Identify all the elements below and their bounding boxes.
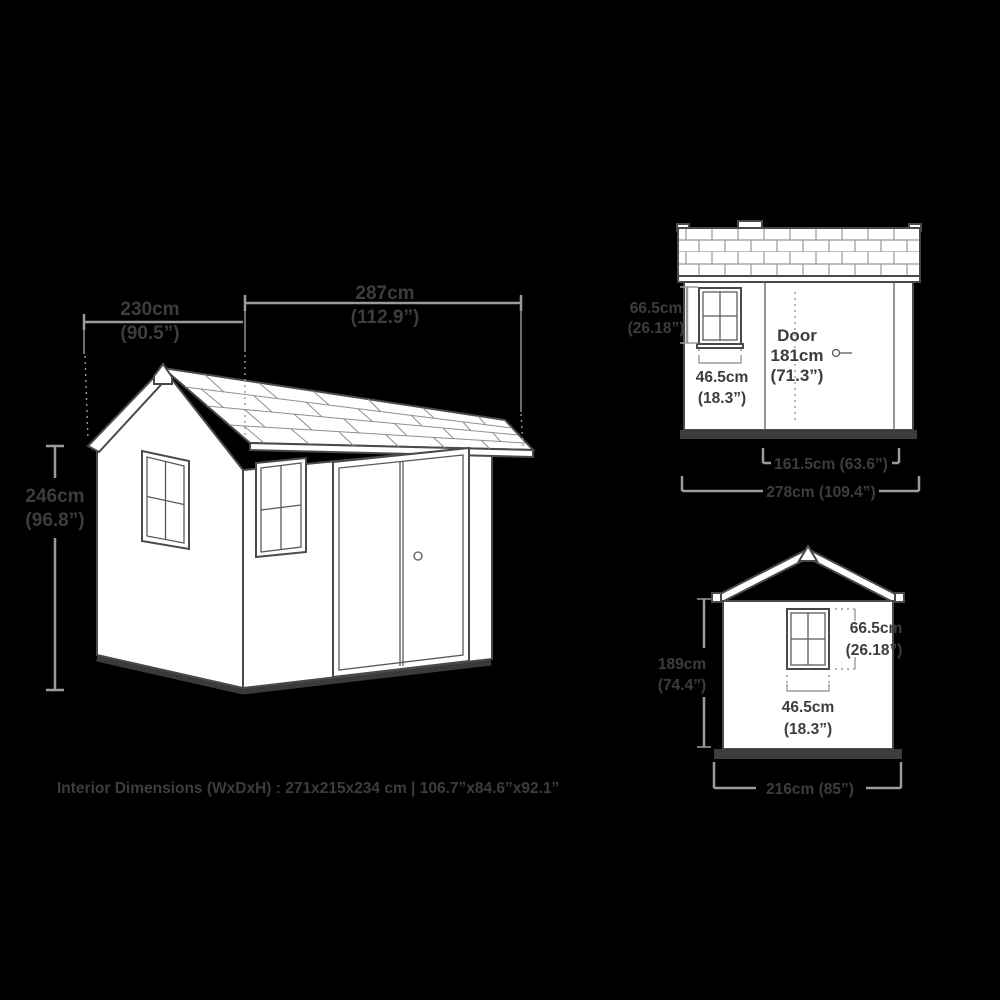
side-window-width-cm: 46.5cm [782, 699, 835, 716]
front-overall-width-label: 278cm (109.4”) [766, 484, 875, 501]
front-door-height-cm: 181cm [771, 346, 824, 365]
interior-dimensions-text: Interior Dimensions (WxDxH) : 271x215x23… [57, 780, 559, 797]
side-overall-width-label: 216cm (85”) [766, 781, 854, 798]
iso-depth-in: (90.5”) [120, 323, 179, 344]
iso-width-in: (112.9”) [351, 307, 420, 328]
front-view: Door 181cm (71.3”) 46.5cm (18.3”) 66.5cm… [628, 221, 921, 501]
front-window-height-dimension: 66.5cm (26.18”) [628, 287, 698, 343]
front-window-width-cm: 46.5cm [696, 369, 749, 386]
side-wall-height-dimension: 189cm (74.4”) [658, 599, 711, 747]
side-eave-cap-right [895, 593, 904, 602]
side-wall-height-in: (74.4”) [658, 677, 706, 694]
side-window-height-in: (26.18”) [846, 642, 903, 659]
diagram-canvas: 230cm (90.5”) 287cm (112.9”) 246cm (96.8… [0, 0, 1000, 1000]
iso-side-window [256, 458, 306, 557]
front-base [680, 430, 917, 439]
iso-height-dimension: 246cm (96.8”) [25, 446, 84, 690]
side-wall-height-cm: 189cm [658, 656, 706, 673]
iso-height-in: (96.8”) [25, 510, 84, 531]
iso-height-cm: 246cm [25, 486, 84, 507]
front-door-height-in: (71.3”) [771, 366, 824, 385]
side-overall-width-dimension: 216cm (85”) [714, 762, 901, 798]
front-window-height-in: (26.18”) [628, 320, 685, 337]
front-window [697, 288, 743, 348]
front-window-height-cm: 66.5cm [630, 300, 683, 317]
side-base [714, 749, 902, 759]
iso-depth-cm: 230cm [120, 299, 179, 320]
iso-width-cm: 287cm [355, 283, 414, 304]
side-eave-cap-left [712, 593, 721, 602]
side-window-height-cm: 66.5cm [850, 620, 903, 637]
front-window-width-in: (18.3”) [698, 390, 746, 407]
iso-gable-window [142, 451, 189, 549]
front-overall-width-dimension: 278cm (109.4”) [682, 476, 919, 501]
front-door-width-dimension: 161.5cm (63.6”) [763, 448, 899, 473]
side-window-width-in: (18.3”) [784, 721, 832, 738]
side-window [787, 609, 829, 669]
iso-ridge-cap [154, 364, 172, 384]
front-door-width-label: 161.5cm (63.6”) [774, 456, 888, 473]
iso-double-door [333, 448, 469, 677]
front-door-title: Door [777, 326, 817, 345]
front-roof [678, 228, 920, 278]
side-view: 66.5cm (26.18”) 46.5cm (18.3”) 189cm (74… [658, 546, 904, 798]
shed-dimensions-diagram: 230cm (90.5”) 287cm (112.9”) 246cm (96.8… [0, 0, 1000, 1000]
iso-view: 230cm (90.5”) 287cm (112.9”) 246cm (96.8… [25, 283, 533, 691]
